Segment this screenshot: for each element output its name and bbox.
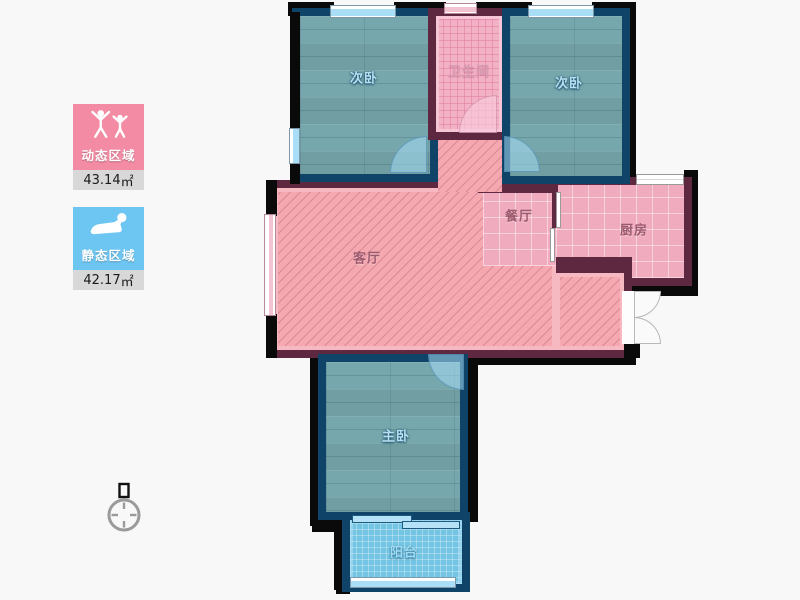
active-people-icon — [87, 107, 131, 139]
legend-static-area: 42.17㎡ — [73, 270, 144, 290]
north-compass-icon — [100, 482, 148, 536]
room-label-dining: 餐厅 — [505, 206, 533, 225]
door-arc — [634, 317, 661, 344]
window — [289, 128, 300, 164]
legend-static-label: 静态区域 — [81, 245, 135, 264]
floorplan-page: { "page": { "background": "#f8f8f8" }, "… — [0, 0, 800, 600]
static-area-unit: ㎡ — [121, 271, 134, 290]
window — [264, 214, 276, 316]
legend-static-zone: 静态区域 — [73, 207, 144, 270]
window — [330, 5, 396, 18]
wall-segment — [266, 180, 277, 216]
wall-segment — [266, 314, 277, 358]
window — [636, 174, 684, 185]
room-label-balcony: 阳台 — [390, 542, 418, 561]
wall-segment — [290, 12, 300, 130]
legend-dynamic-area: 43.14㎡ — [73, 170, 144, 190]
wall-segment — [624, 344, 640, 358]
room-living-right — [556, 257, 632, 358]
hallway — [438, 140, 502, 192]
room-label-living: 客厅 — [353, 248, 381, 267]
legend-dynamic-label: 动态区域 — [81, 145, 135, 164]
sliding-door — [550, 228, 555, 262]
window — [528, 5, 594, 18]
sliding-door — [556, 192, 561, 228]
resting-person-icon — [87, 209, 131, 239]
door-opening — [622, 291, 634, 344]
room-label-bathroom: 卫生间 — [448, 61, 490, 80]
window — [350, 577, 456, 588]
wall-segment — [468, 354, 478, 522]
door-arc — [634, 291, 661, 318]
static-area-value: 42.17 — [83, 273, 120, 288]
room-label-master-bedroom: 主卧 — [382, 426, 410, 445]
room-label-kitchen: 厨房 — [620, 220, 648, 239]
legend-dynamic-zone: 动态区域 — [73, 104, 144, 170]
room-dining — [483, 193, 556, 266]
sliding-door — [402, 521, 460, 529]
room-label-bedroom-top-left: 次卧 — [350, 68, 378, 87]
dynamic-area-value: 43.14 — [83, 173, 120, 188]
dynamic-area-unit: ㎡ — [121, 171, 134, 190]
room-label-bedroom-top-right: 次卧 — [555, 73, 583, 92]
window — [444, 3, 477, 14]
